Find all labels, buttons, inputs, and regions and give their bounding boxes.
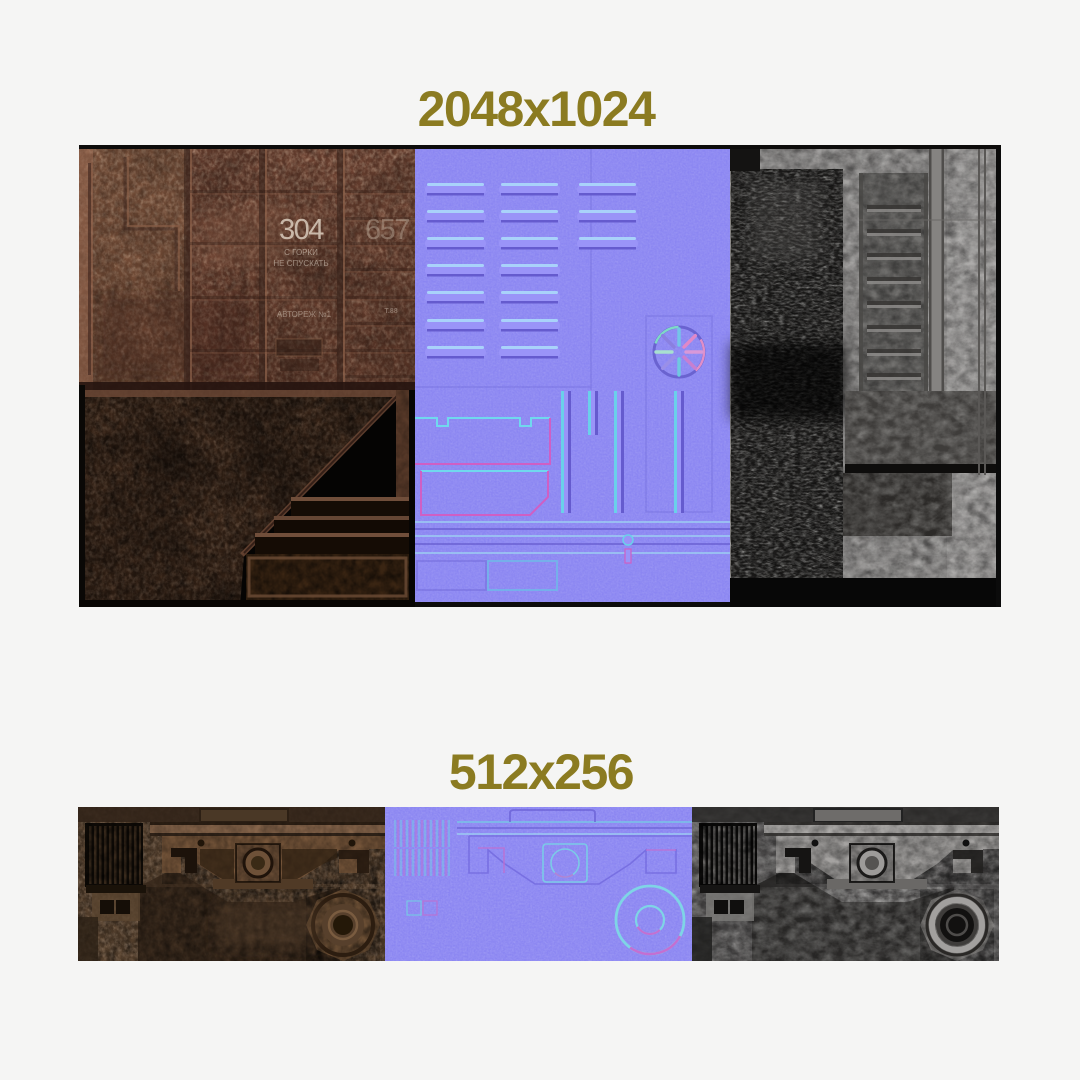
svg-text:НЕ СПУСКАТЬ: НЕ СПУСКАТЬ	[273, 259, 328, 268]
svg-text:С ГОРКИ: С ГОРКИ	[284, 248, 318, 257]
svg-text:657: 657	[365, 214, 409, 246]
svg-text:304: 304	[279, 214, 324, 246]
svg-text:АВТОРЕЖ №1: АВТОРЕЖ №1	[277, 310, 332, 319]
svg-text:Т.88: Т.88	[384, 308, 397, 315]
